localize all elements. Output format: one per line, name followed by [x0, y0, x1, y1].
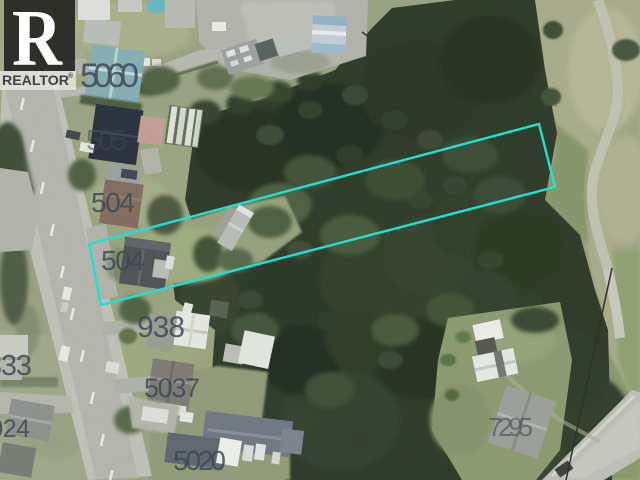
- svg-text:505: 505: [86, 125, 127, 157]
- svg-text:504: 504: [101, 245, 145, 276]
- svg-text:REALTOR: REALTOR: [2, 73, 69, 88]
- svg-text:504: 504: [91, 187, 135, 218]
- svg-text:5020: 5020: [173, 445, 226, 476]
- svg-text:5037: 5037: [144, 373, 200, 403]
- svg-text:R: R: [12, 0, 63, 83]
- svg-text:5060: 5060: [80, 57, 139, 95]
- svg-text:®: ®: [68, 72, 74, 80]
- svg-text:7295: 7295: [488, 412, 533, 442]
- svg-text:833: 833: [0, 350, 32, 382]
- svg-text:938: 938: [137, 311, 185, 344]
- svg-text:5024: 5024: [0, 415, 30, 443]
